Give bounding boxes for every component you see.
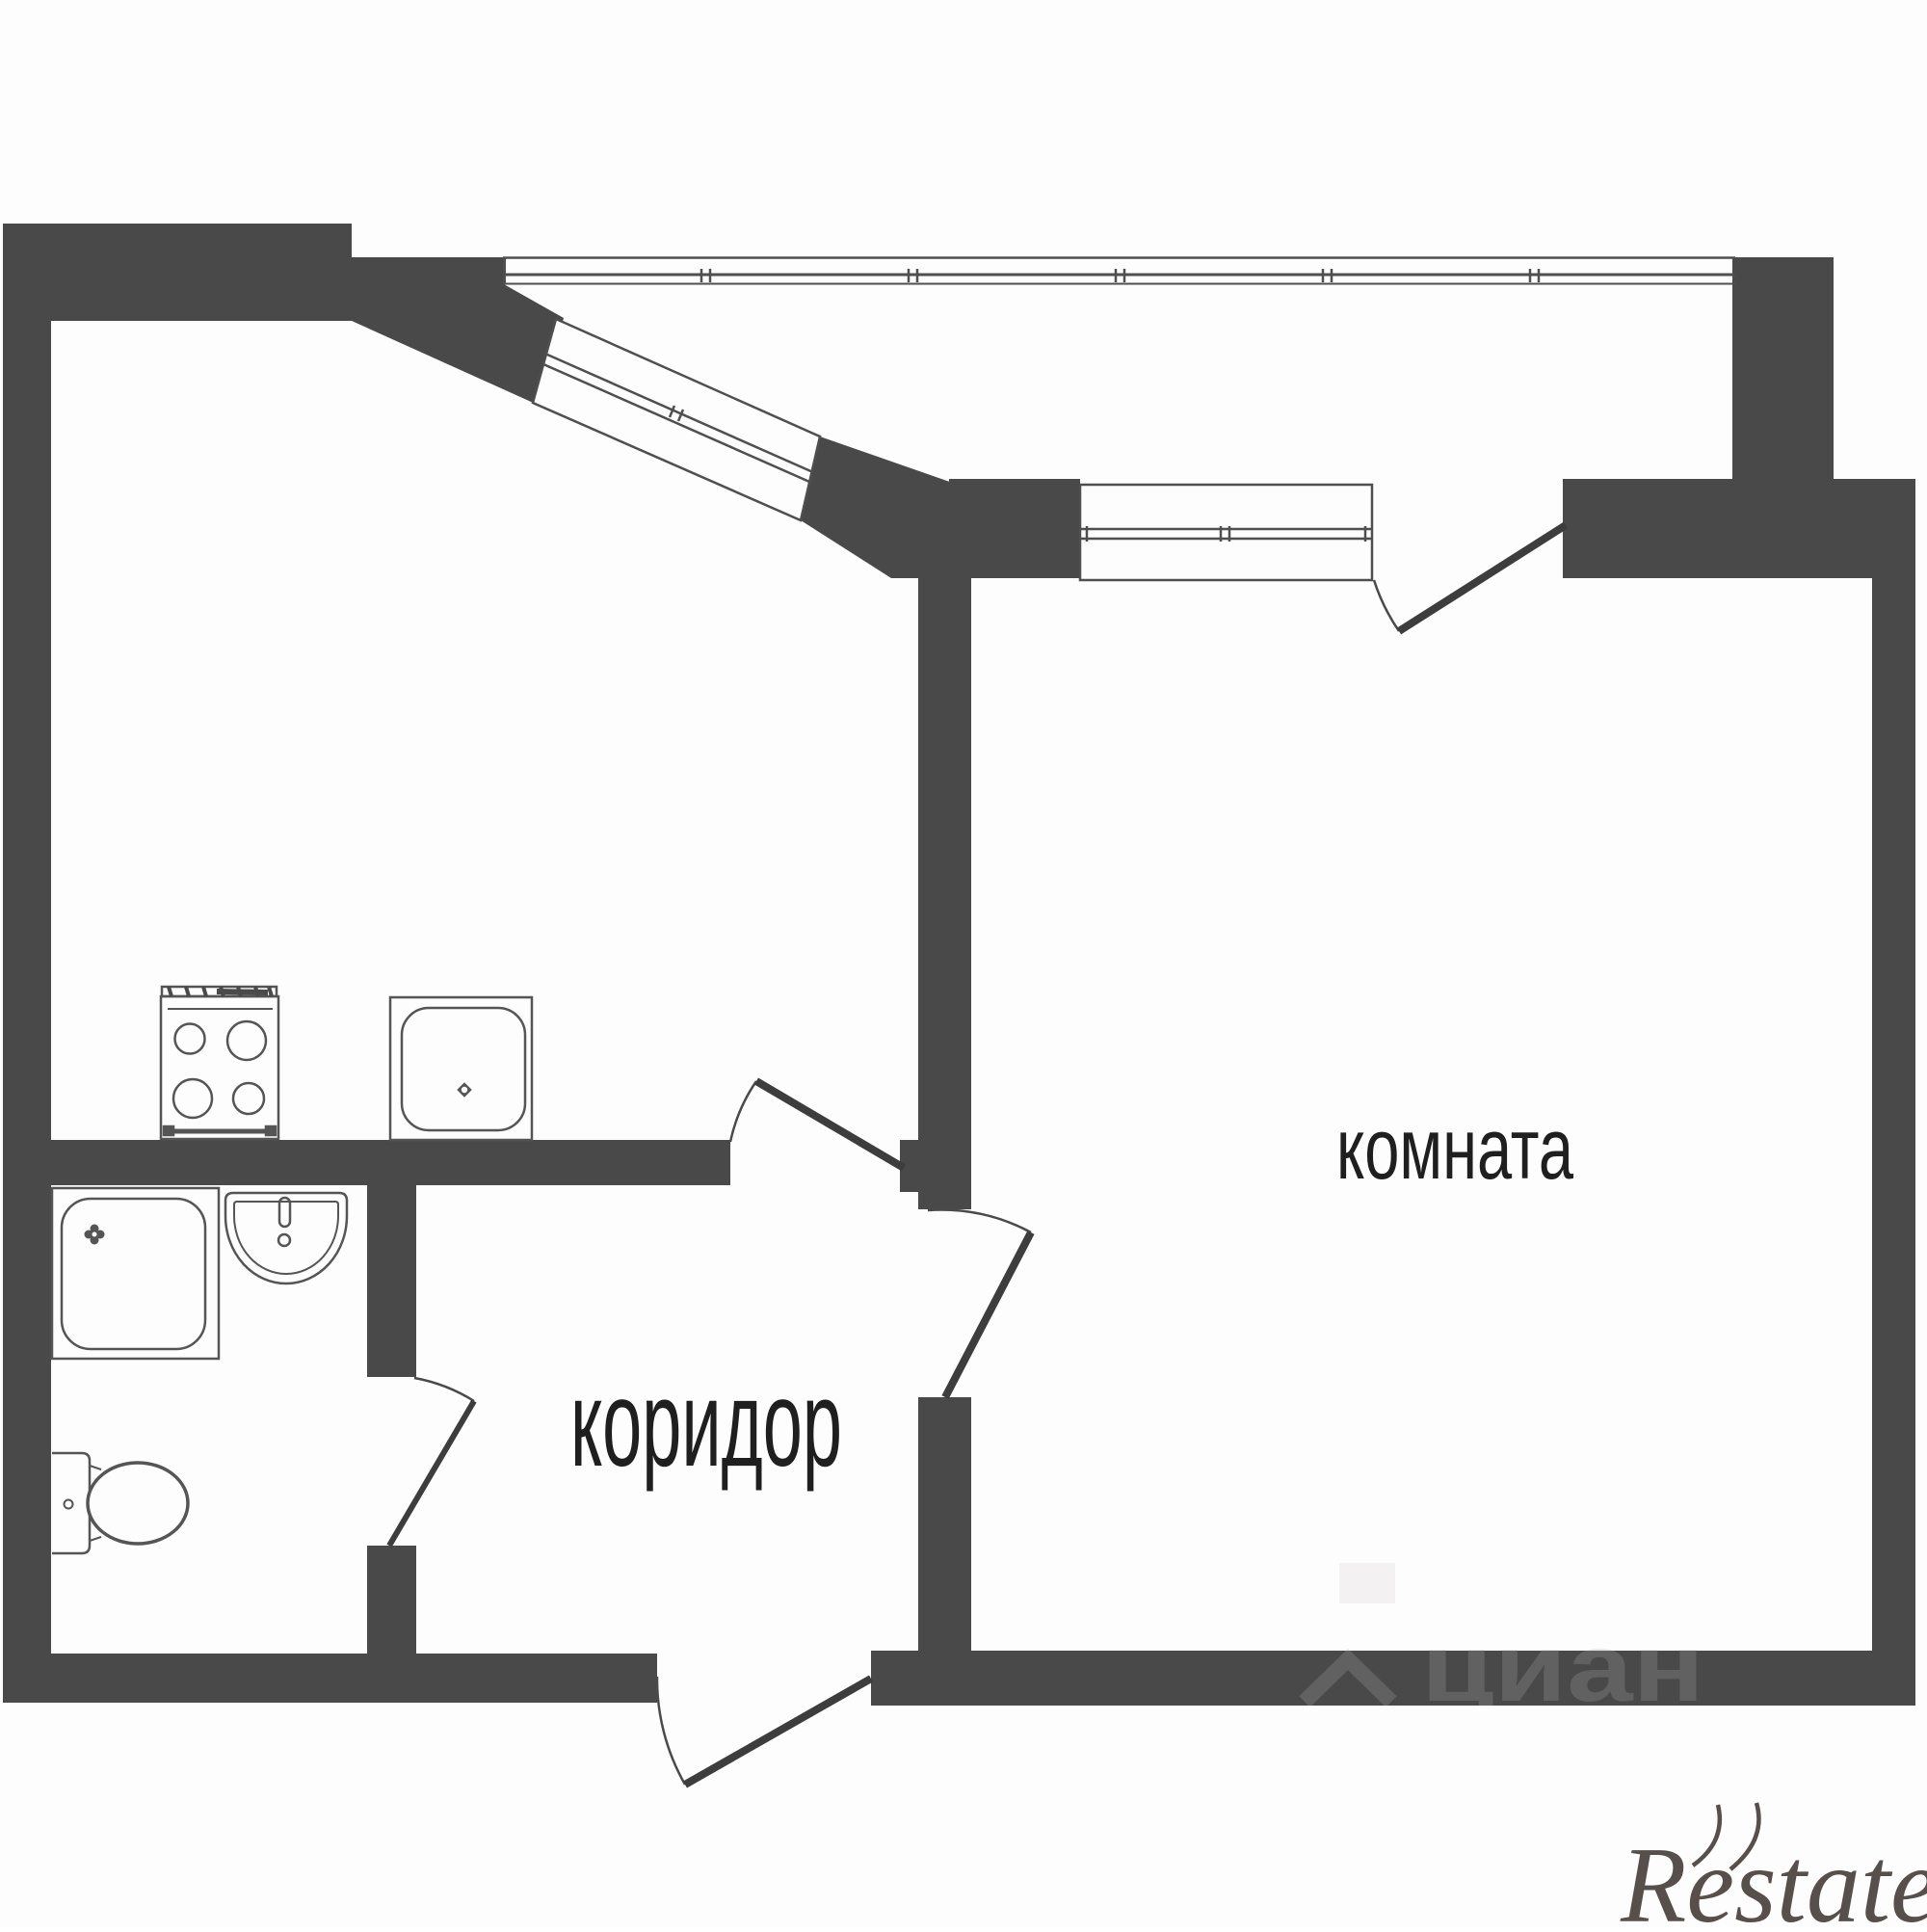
svg-text:коридор: коридор — [570, 1355, 842, 1492]
svg-text:Restate: Restate — [1620, 1826, 1927, 1927]
svg-text:комната: комната — [1336, 1101, 1574, 1198]
